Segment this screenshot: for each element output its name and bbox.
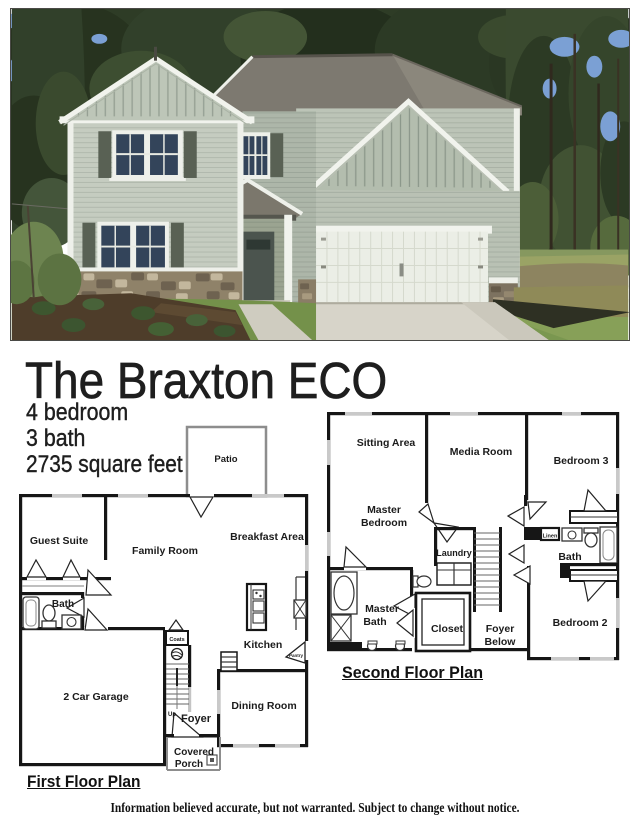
svg-text:Up: Up: [168, 712, 176, 718]
svg-text:Foyer: Foyer: [486, 623, 515, 635]
svg-text:Closet: Closet: [431, 623, 464, 635]
svg-text:Breakfast Area: Breakfast Area: [230, 531, 304, 543]
svg-text:Sitting Area: Sitting Area: [357, 437, 416, 449]
svg-text:Below: Below: [485, 636, 517, 648]
svg-text:Foyer: Foyer: [181, 713, 212, 725]
svg-text:Linen: Linen: [543, 534, 558, 540]
svg-text:Porch: Porch: [175, 759, 203, 770]
svg-text:Master: Master: [365, 603, 399, 615]
svg-text:Bedroom: Bedroom: [361, 517, 407, 529]
svg-text:Laundry: Laundry: [436, 548, 472, 558]
svg-text:Bedroom 3: Bedroom 3: [554, 455, 609, 467]
svg-text:Family Room: Family Room: [132, 545, 198, 557]
svg-text:Dining Room: Dining Room: [231, 700, 296, 712]
svg-text:Master: Master: [367, 504, 401, 516]
svg-text:Media Room: Media Room: [450, 446, 512, 458]
svg-text:2 Car Garage: 2 Car Garage: [63, 691, 129, 703]
svg-text:Coats: Coats: [169, 637, 184, 643]
svg-text:Bath: Bath: [363, 616, 386, 628]
svg-text:Bath: Bath: [52, 599, 74, 610]
svg-text:Bedroom 2: Bedroom 2: [553, 617, 608, 629]
svg-text:Patio: Patio: [214, 454, 237, 465]
svg-text:Pantry: Pantry: [289, 653, 304, 658]
svg-text:Kitchen: Kitchen: [244, 639, 283, 651]
svg-text:Guest Suite: Guest Suite: [30, 535, 89, 547]
svg-text:Bath: Bath: [558, 551, 581, 563]
svg-text:Covered: Covered: [174, 747, 214, 758]
